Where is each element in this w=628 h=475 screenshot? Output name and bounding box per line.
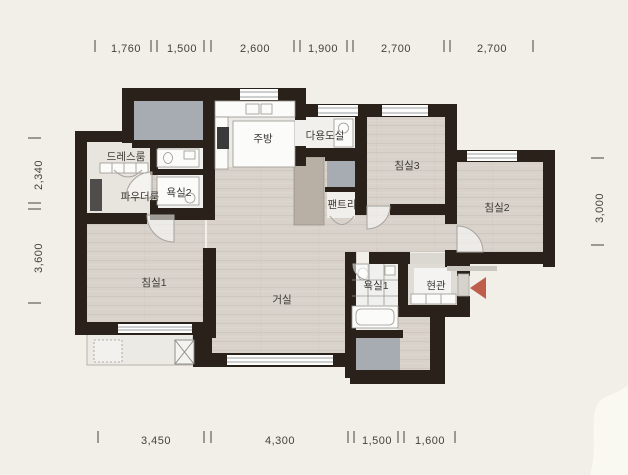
dim-right-1: 3,000 [594,193,606,223]
dim-bottom-4: 1,600 [415,435,445,447]
ac-unit-box [175,340,194,364]
dim-top-3: 2,600 [240,43,270,55]
balcony-grate [94,340,122,362]
decorative-watermark [590,385,628,475]
dim-top-5: 2,700 [381,43,411,55]
room-label-bed2: 침실2 [484,202,509,214]
dim-top-1: 1,760 [111,43,141,55]
entry-threshold [410,253,445,264]
dim-top-4: 1,900 [308,43,338,55]
duct-block-mid [327,161,355,187]
kitchen-window [240,89,278,100]
room-label-living: 거실 [272,294,291,306]
room-label-bed1: 침실1 [141,277,166,289]
dim-bottom-1: 3,450 [141,435,171,447]
room-label-powder: 파우더룸 [121,191,160,203]
wardrobe [90,179,102,211]
utility-window [318,105,358,116]
room-label-utility: 다용도실 [306,130,345,142]
cooktop [217,127,229,149]
dim-top-6: 2,700 [477,43,507,55]
dim-left-2: 3,600 [33,243,45,273]
dim-bottom-3: 1,500 [362,435,392,447]
floor-plan-image: 드레스룸 파우더룸 욕실2 주방 다용도실 팬트리 침실3 침실2 침실1 거실… [0,0,628,475]
entry-arrow-icon [470,277,486,299]
dim-top-2: 1,500 [167,43,197,55]
bed2-window [467,151,517,161]
shoe-cabinet [411,294,456,304]
dim-bottom-2: 4,300 [265,435,295,447]
storage-block [294,157,324,225]
room-label-pantry: 팬트리 [328,199,357,211]
room-label-kitchen: 주방 [253,133,273,145]
floor-plan-svg: 드레스룸 파우더룸 욕실2 주방 다용도실 팬트리 침실3 침실2 침실1 거실… [0,0,628,475]
front-door [458,274,469,296]
duct-block-top [132,96,203,140]
entry-canopy [447,266,497,271]
duct-block-bottom [354,336,400,370]
bed3-window [382,105,428,116]
living-window [227,355,333,365]
dim-left-1: 2,340 [33,160,45,190]
room-label-entry: 현관 [426,280,446,292]
room-label-bath2: 욕실2 [166,187,191,199]
room-label-dress: 드레스룸 [107,151,146,163]
room-label-bed3: 침실3 [394,160,419,172]
room-label-bath1: 욕실1 [363,280,388,292]
bed1-window [118,324,192,333]
